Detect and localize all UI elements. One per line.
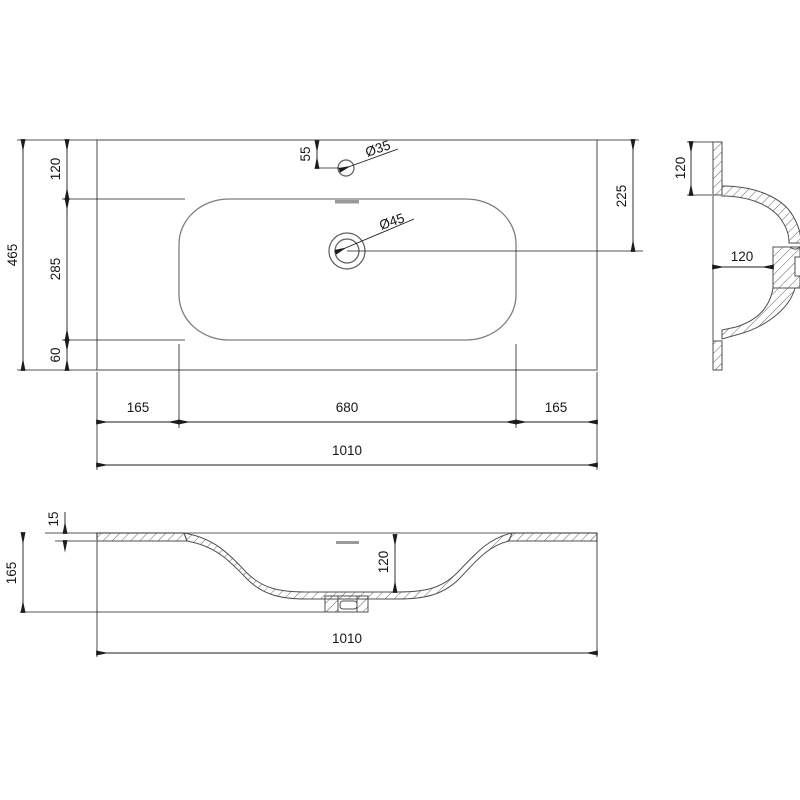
dim-drain-from-back-label: 225 — [614, 185, 629, 208]
dim-bowl-to-front-label: 60 — [48, 347, 63, 362]
drawing-canvas: 465 120 285 60 55 225 Ø35 Ø45 165 680 16… — [0, 0, 800, 800]
dim-side-rim-offset-label: 120 — [673, 157, 688, 180]
overflow-slot-mark — [335, 200, 359, 204]
technical-drawing-svg: 465 120 285 60 55 225 Ø35 Ø45 165 680 16… — [0, 0, 800, 800]
front-drain-block-right — [357, 596, 368, 612]
side-bowl-upper-shell — [722, 186, 800, 243]
dim-bowl-width-label: 680 — [336, 400, 359, 415]
dim-bowl-left-offset-label: 165 — [127, 400, 150, 415]
side-wall-bottom-band — [713, 341, 722, 370]
dim-side-bowl-depth-label: 120 — [731, 249, 754, 264]
front-drain-block-left — [325, 596, 338, 612]
countertop-outline — [97, 140, 597, 370]
dim-front-bowl-depth-label: 120 — [376, 551, 391, 574]
plan-extension-lines — [17, 140, 643, 470]
dim-overall-width-label: 1010 — [332, 443, 362, 458]
plan-view: 465 120 285 60 55 225 Ø35 Ø45 165 680 16… — [5, 137, 643, 470]
dim-overall-depth-label: 465 — [5, 244, 20, 267]
dim-faucet-offset-label: 55 — [298, 146, 313, 161]
dim-top-thickness-label: 15 — [46, 511, 61, 526]
side-bowl-lower-shell — [722, 288, 795, 339]
drain-diameter-label: Ø45 — [377, 210, 406, 232]
side-drain-boss — [773, 247, 800, 288]
dim-front-height-label: 165 — [4, 562, 19, 585]
side-wall-top-band — [713, 142, 722, 195]
side-section-view: 120 120 — [673, 142, 800, 370]
front-slab-left-band — [97, 533, 187, 541]
dim-bowl-depth-label: 285 — [48, 258, 63, 281]
front-section-view: 15 165 120 1010 — [4, 511, 597, 657]
front-overflow-mark — [336, 541, 359, 544]
dim-front-overall-width-label: 1010 — [332, 631, 362, 646]
dim-back-to-bowl-label: 120 — [48, 158, 63, 181]
dim-bowl-right-offset-label: 165 — [545, 400, 568, 415]
front-slab-right-band — [509, 533, 597, 541]
front-drain-hole — [340, 601, 357, 609]
